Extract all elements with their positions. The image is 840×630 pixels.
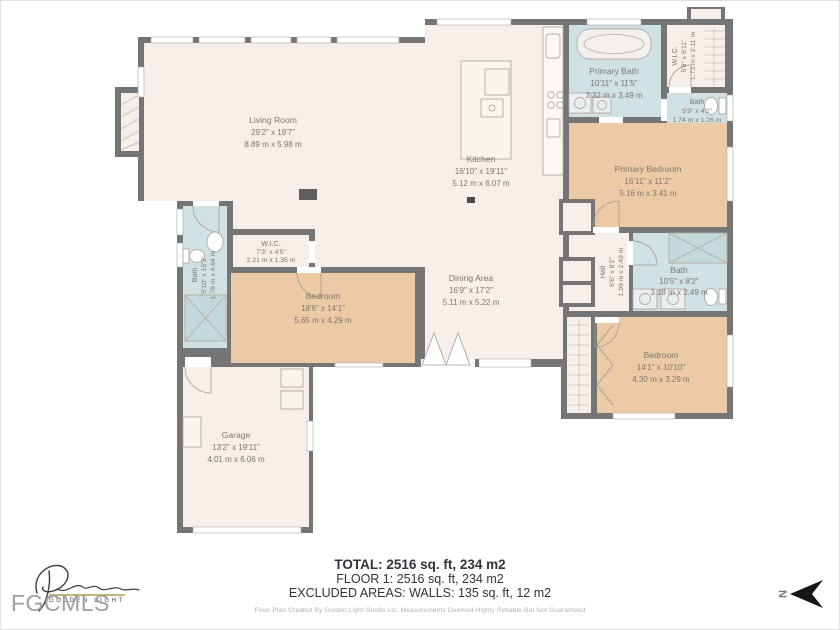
golden-light-logo: GOLDEN LIGHT FGCMLS [9, 557, 149, 627]
svg-text:5'8" x 6'11": 5'8" x 6'11" [681, 39, 688, 73]
svg-text:16'11" x 11'2": 16'11" x 11'2" [624, 177, 671, 186]
svg-text:1.74 m x 1.26 m: 1.74 m x 1.26 m [673, 117, 722, 124]
svg-text:5.65 m x 4.29 m: 5.65 m x 4.29 m [294, 316, 352, 325]
svg-text:Bath: Bath [690, 97, 705, 106]
svg-text:Garage: Garage [222, 430, 251, 440]
kitchen-marker [467, 197, 475, 203]
floor-plan-drawing: Living Room 29'2" x 19'7" 8.89 m x 5.98 … [1, 1, 840, 630]
svg-text:Living Room: Living Room [249, 115, 297, 125]
svg-text:2.21 m x 1.35 m: 2.21 m x 1.35 m [247, 257, 296, 264]
svg-text:1.99 m x 2.49 m: 1.99 m x 2.49 m [618, 247, 625, 296]
svg-text:14'1" x 10'10": 14'1" x 10'10" [637, 363, 685, 372]
svg-text:5.11 m x 5.22 m: 5.11 m x 5.22 m [443, 298, 500, 307]
svg-text:29'2" x 19'7": 29'2" x 19'7" [251, 128, 295, 137]
room-living-extension [233, 201, 315, 229]
svg-text:1.73 m x 2.11 m: 1.73 m x 2.11 m [690, 32, 697, 81]
svg-text:18'6" x 14'1": 18'6" x 14'1" [301, 304, 345, 313]
svg-text:W.I.C.: W.I.C. [261, 239, 281, 248]
svg-text:16'10" x 19'11": 16'10" x 19'11" [455, 167, 507, 176]
svg-text:Primary Bedroom: Primary Bedroom [615, 164, 682, 174]
fireplace-inner [121, 93, 139, 151]
svg-text:10'11" x 11'5": 10'11" x 11'5" [590, 79, 637, 88]
kitchen-island [461, 61, 511, 159]
living-room-vent [299, 189, 317, 200]
svg-text:10'5" x 8'2": 10'5" x 8'2" [659, 277, 699, 286]
living-room-label: Living Room 29'2" x 19'7" 8.89 m x 5.98 … [244, 115, 302, 149]
sink-icon [207, 232, 223, 252]
primary-bedroom-label: Primary Bedroom 16'11" x 11'2" 5.16 m x … [615, 164, 682, 198]
svg-text:Bedroom: Bedroom [644, 350, 679, 360]
svg-text:Kitchen: Kitchen [467, 154, 496, 164]
toilet-tank-icon [719, 289, 726, 304]
mls-watermark: FGCMLS [11, 590, 110, 617]
svg-text:Bedroom: Bedroom [306, 291, 341, 301]
svg-text:13'2" x 19'11": 13'2" x 19'11" [212, 443, 260, 452]
svg-text:6'6" x 8'2": 6'6" x 8'2" [609, 257, 616, 287]
svg-text:3.32 m x 3.49 m: 3.32 m x 3.49 m [585, 91, 643, 100]
svg-text:5'10" x 15'3": 5'10" x 15'3" [201, 256, 208, 294]
primary-bath-label: Primary Bath 10'11" x 11'5" 3.32 m x 3.4… [585, 66, 643, 100]
svg-text:Hall: Hall [598, 265, 607, 278]
svg-text:1.78 m x 4.64 m: 1.78 m x 4.64 m [210, 250, 217, 299]
svg-text:5'9" x 4'2": 5'9" x 4'2" [682, 108, 712, 115]
svg-text:5.12 m x 6.07 m: 5.12 m x 6.07 m [452, 179, 510, 188]
svg-text:4.30 m x 3.29 m: 4.30 m x 3.29 m [632, 375, 690, 384]
bathtub-icon [577, 29, 651, 59]
svg-text:Bath: Bath [670, 265, 688, 275]
svg-text:3.18 m x 2.49 m: 3.18 m x 2.49 m [650, 288, 708, 297]
dining-area-label: Dining Area 16'9" x 17'2" 5.11 m x 5.22 … [443, 273, 500, 307]
floor-plan-page: Living Room 29'2" x 19'7" 8.89 m x 5.98 … [0, 0, 840, 630]
svg-text:W.I.C.: W.I.C. [670, 46, 679, 66]
roof-tab-inner [691, 9, 721, 19]
svg-text:Bath: Bath [190, 268, 199, 283]
svg-text:7'3" x 4'5": 7'3" x 4'5" [256, 249, 286, 256]
toilet-tank-icon [183, 249, 189, 263]
svg-text:Dining Area: Dining Area [449, 273, 494, 283]
svg-text:8.89 m x 5.98 m: 8.89 m x 5.98 m [244, 140, 302, 149]
room-corridor [315, 201, 425, 267]
svg-text:4.01 m x 6.06 m: 4.01 m x 6.06 m [207, 455, 265, 464]
svg-text:16'9" x 17'2": 16'9" x 17'2" [449, 286, 493, 295]
svg-text:Primary Bath: Primary Bath [589, 66, 639, 76]
svg-text:5.16 m x 3.41 m: 5.16 m x 3.41 m [619, 189, 677, 198]
